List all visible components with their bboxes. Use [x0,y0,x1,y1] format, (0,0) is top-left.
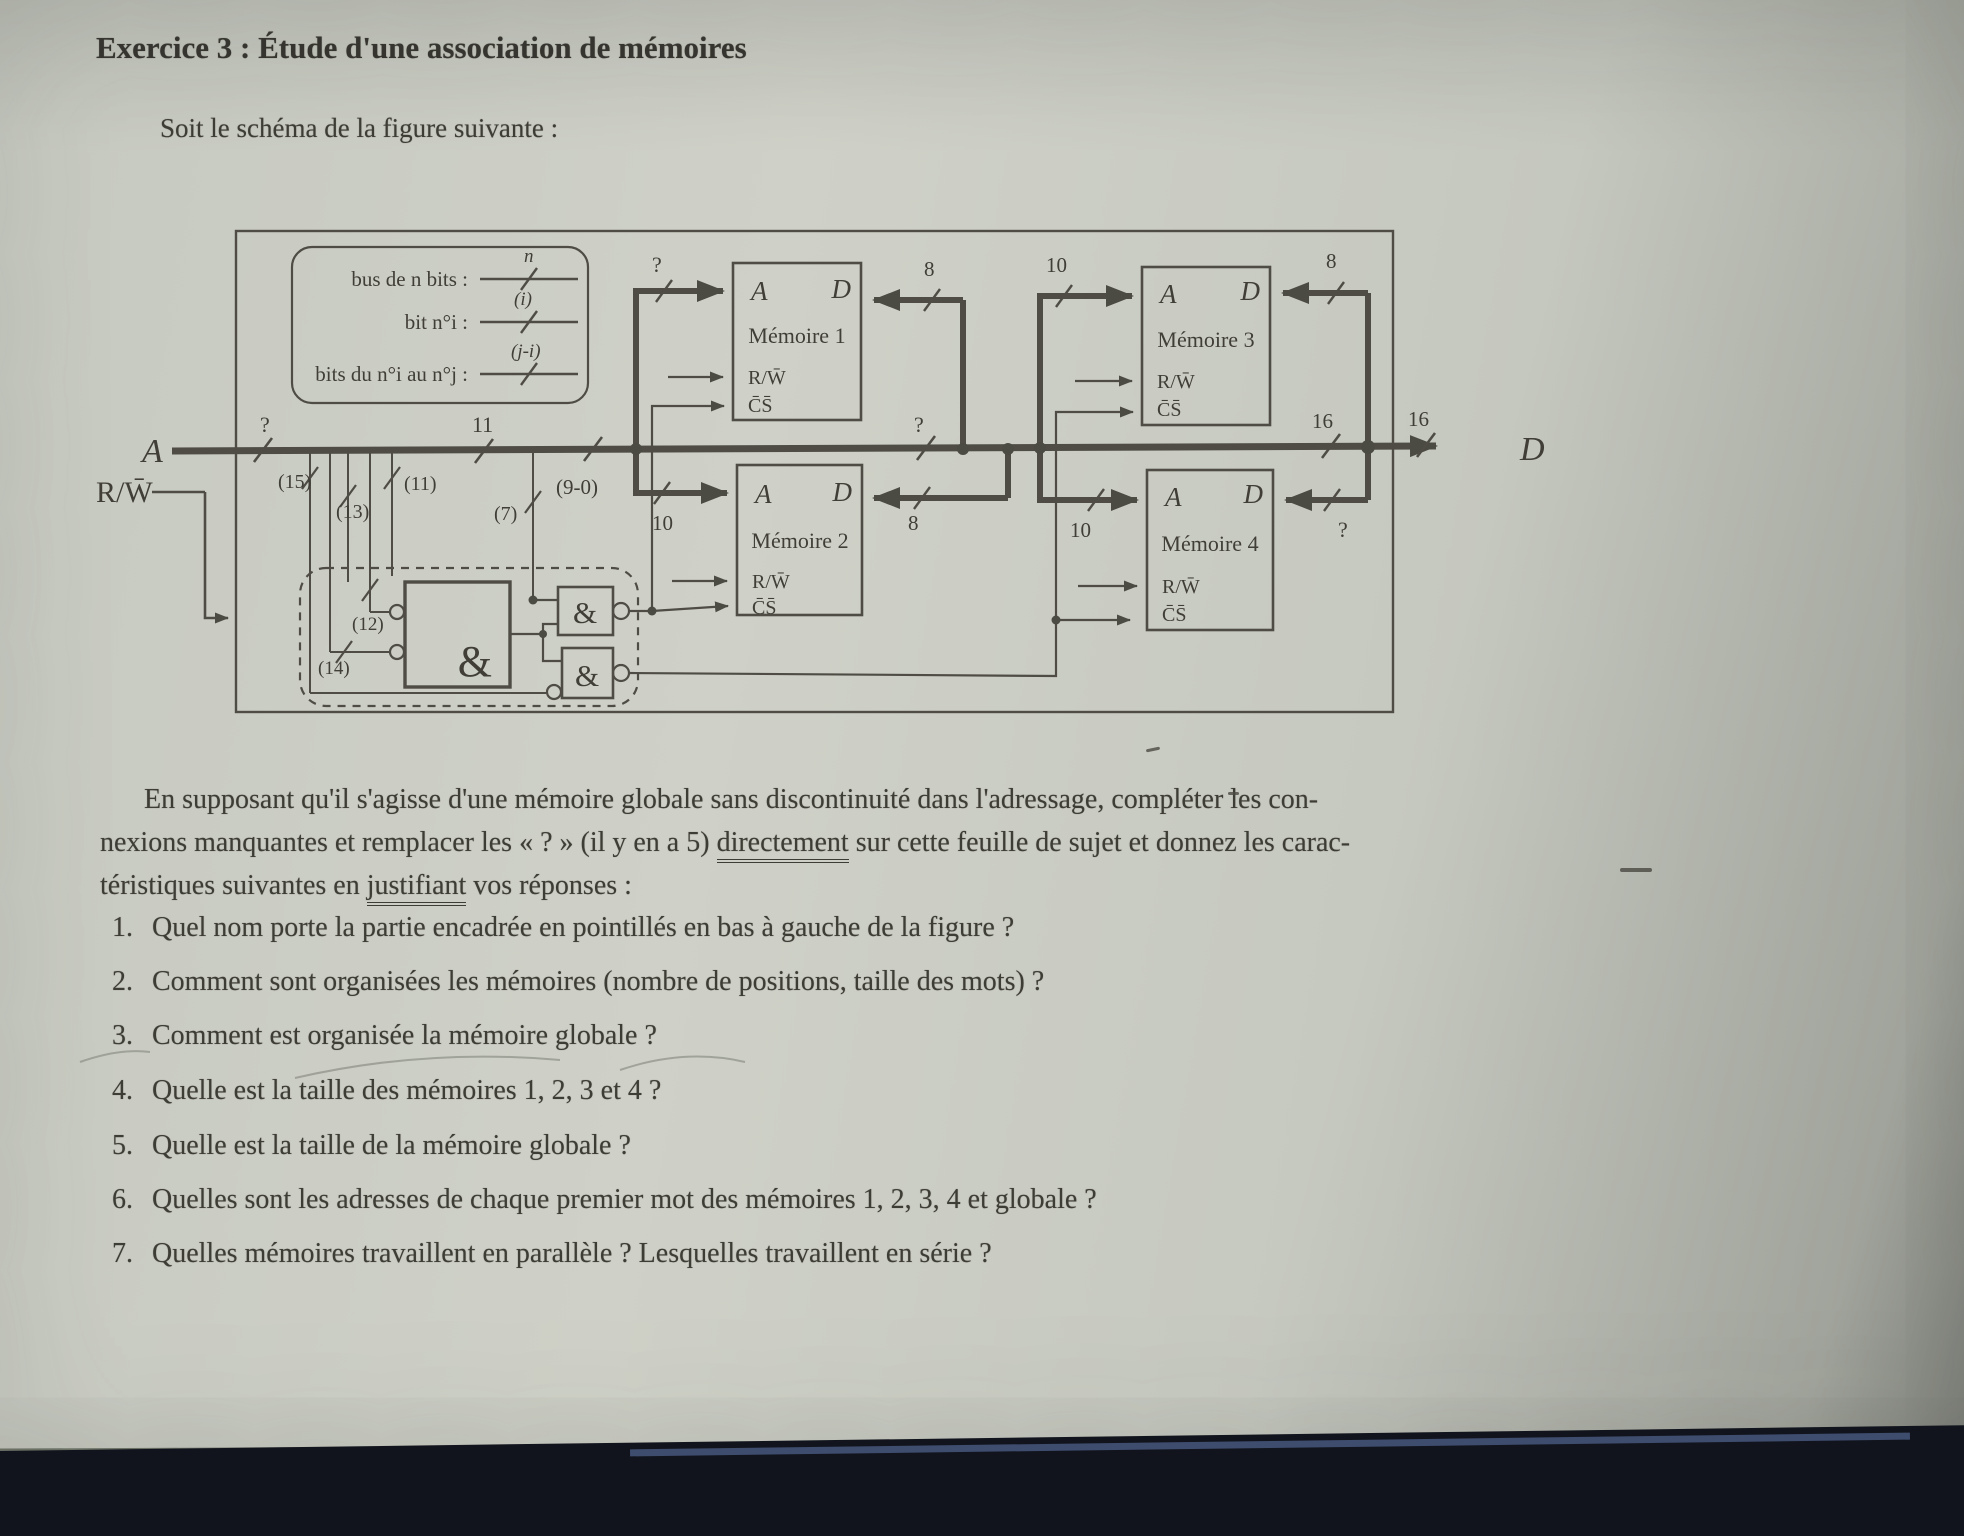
question-1: 1.Quel nom porte la partie encadrée en p… [112,912,1014,944]
underlined-directement: directement [717,827,849,863]
stray-mark [1620,868,1652,872]
question-3: 3.Comment est organisée la mémoire globa… [112,1020,657,1052]
paper-sheet [0,0,1964,1449]
exercise-title: Exercice 3 : Étude d'une association de … [96,30,747,66]
figure-intro: Soit le schéma de la figure suivante : [160,113,558,144]
photographed-exam-sheet: Exercice 3 : Étude d'une association de … [0,0,1964,1536]
paragraph-line3: téristiques suivantes en justifiant vos … [100,864,1550,907]
paragraph-line1: En supposant qu'il s'agisse d'une mémoir… [100,778,1550,821]
question-7: 7.Quelles mémoires travaillent en parall… [112,1238,992,1270]
stray-mark [1228,792,1239,795]
question-2: 2.Comment sont organisées les mémoires (… [112,966,1044,998]
question-6: 6.Quelles sont les adresses de chaque pr… [112,1184,1097,1216]
paragraph-line2: nexions manquantes et remplacer les « ? … [100,821,1550,864]
question-5: 5.Quelle est la taille de la mémoire glo… [112,1130,631,1162]
instructions-paragraph: En supposant qu'il s'agisse d'une mémoir… [100,778,1550,907]
underlined-justifiant: justifiant [367,870,467,906]
question-4: 4.Quelle est la taille des mémoires 1, 2… [112,1075,661,1107]
